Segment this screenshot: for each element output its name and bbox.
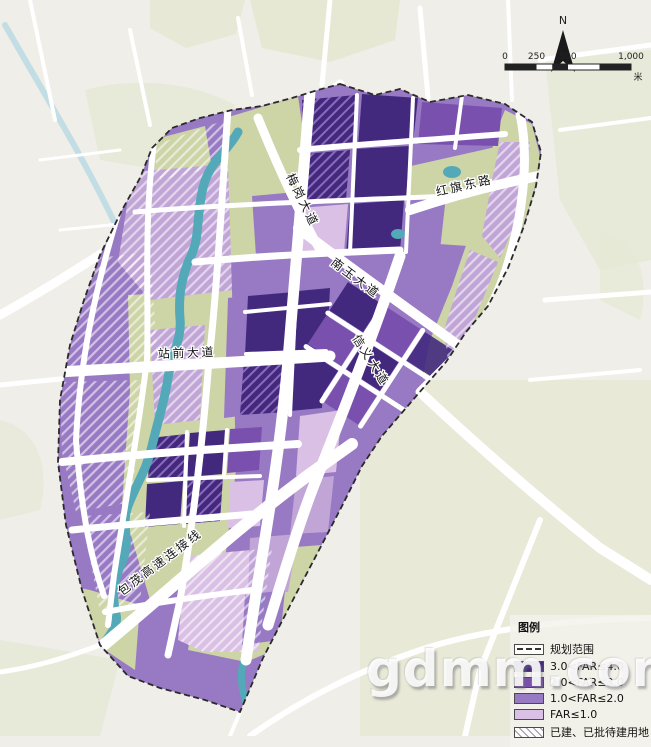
legend-item-label: FAR≤1.0 bbox=[550, 708, 597, 721]
legend-swatch-planning-boundary bbox=[514, 644, 544, 655]
legend-panel: 图例 规划范围 3.0<FAR≤4.0 2.0<FAR≤3.0 1.0<FAR≤… bbox=[510, 615, 651, 747]
legend-item: 1.0<FAR≤2.0 bbox=[514, 692, 651, 705]
legend-item: 2.0<FAR≤3.0 bbox=[514, 676, 651, 689]
scale-tick: 1,000 bbox=[618, 52, 644, 62]
scale-tick: 0 bbox=[502, 52, 508, 62]
legend-item-label: 已建、已批待建用地 bbox=[550, 724, 649, 740]
scale-tick: 500 bbox=[559, 52, 576, 62]
legend-item: 已建、已批待建用地 bbox=[514, 724, 651, 740]
legend-item-label: 1.0<FAR≤2.0 bbox=[550, 692, 624, 705]
legend-item: 3.0<FAR≤4.0 bbox=[514, 660, 651, 673]
scale-unit: 米 bbox=[633, 71, 642, 83]
pond bbox=[391, 229, 405, 239]
road-label-zhanqian: 站前大道 bbox=[158, 344, 217, 361]
scale-tick: 250 bbox=[528, 52, 545, 62]
legend-item: 规划范围 bbox=[514, 641, 651, 657]
legend-item-label: 2.0<FAR≤3.0 bbox=[550, 676, 624, 689]
pond bbox=[443, 166, 461, 178]
legend-swatch-far-le-1 bbox=[514, 709, 544, 720]
legend-swatch-far-3-4 bbox=[514, 661, 544, 672]
legend-title: 图例 bbox=[518, 619, 651, 635]
north-label: N bbox=[559, 14, 567, 27]
legend-item-label: 规划范围 bbox=[550, 641, 594, 657]
legend-item: FAR≤1.0 bbox=[514, 708, 651, 721]
legend-item-label: 3.0<FAR≤4.0 bbox=[550, 660, 624, 673]
legend-swatch-far-1-2 bbox=[514, 693, 544, 704]
legend-swatch-far-2-3 bbox=[514, 677, 544, 688]
